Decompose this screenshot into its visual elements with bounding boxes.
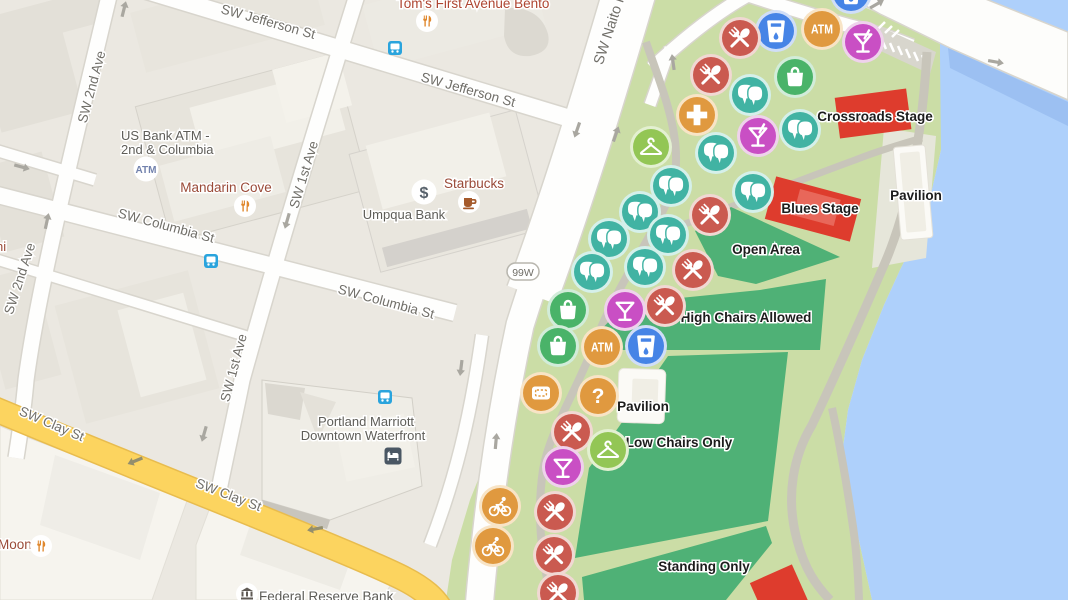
svg-text:ATM: ATM [136, 165, 157, 176]
svg-text:Portland Marriott: Portland Marriott [318, 414, 414, 429]
svg-text:Umpqua Bank: Umpqua Bank [363, 207, 446, 222]
svg-text:Downtown Waterfront: Downtown Waterfront [301, 428, 426, 443]
svg-text:Tom's First Avenue Bento: Tom's First Avenue Bento [397, 0, 549, 11]
svg-text:Pavilion: Pavilion [890, 188, 942, 203]
svg-text:High Chairs Allowed: High Chairs Allowed [681, 310, 812, 325]
svg-text:ni: ni [0, 239, 6, 254]
svg-text:US Bank ATM -: US Bank ATM - [121, 128, 210, 143]
svg-text:Blues Stage: Blues Stage [781, 201, 859, 216]
svg-text:Crossroads Stage: Crossroads Stage [817, 109, 933, 124]
svg-text:Pavilion: Pavilion [617, 399, 669, 414]
svg-text:Mandarin Cove: Mandarin Cove [180, 180, 272, 195]
svg-text:Low Chairs Only: Low Chairs Only [626, 435, 733, 450]
svg-text:Federal Reserve Bank: Federal Reserve Bank [259, 589, 394, 600]
svg-text:2nd & Columbia: 2nd & Columbia [121, 142, 214, 157]
svg-text:Standing Only: Standing Only [658, 559, 750, 574]
svg-text:Moon: Moon [0, 537, 32, 552]
svg-text:Starbucks: Starbucks [444, 176, 504, 191]
svg-text:Open Area: Open Area [732, 242, 800, 257]
svg-text:$: $ [420, 185, 429, 202]
svg-text:99W: 99W [512, 267, 534, 279]
